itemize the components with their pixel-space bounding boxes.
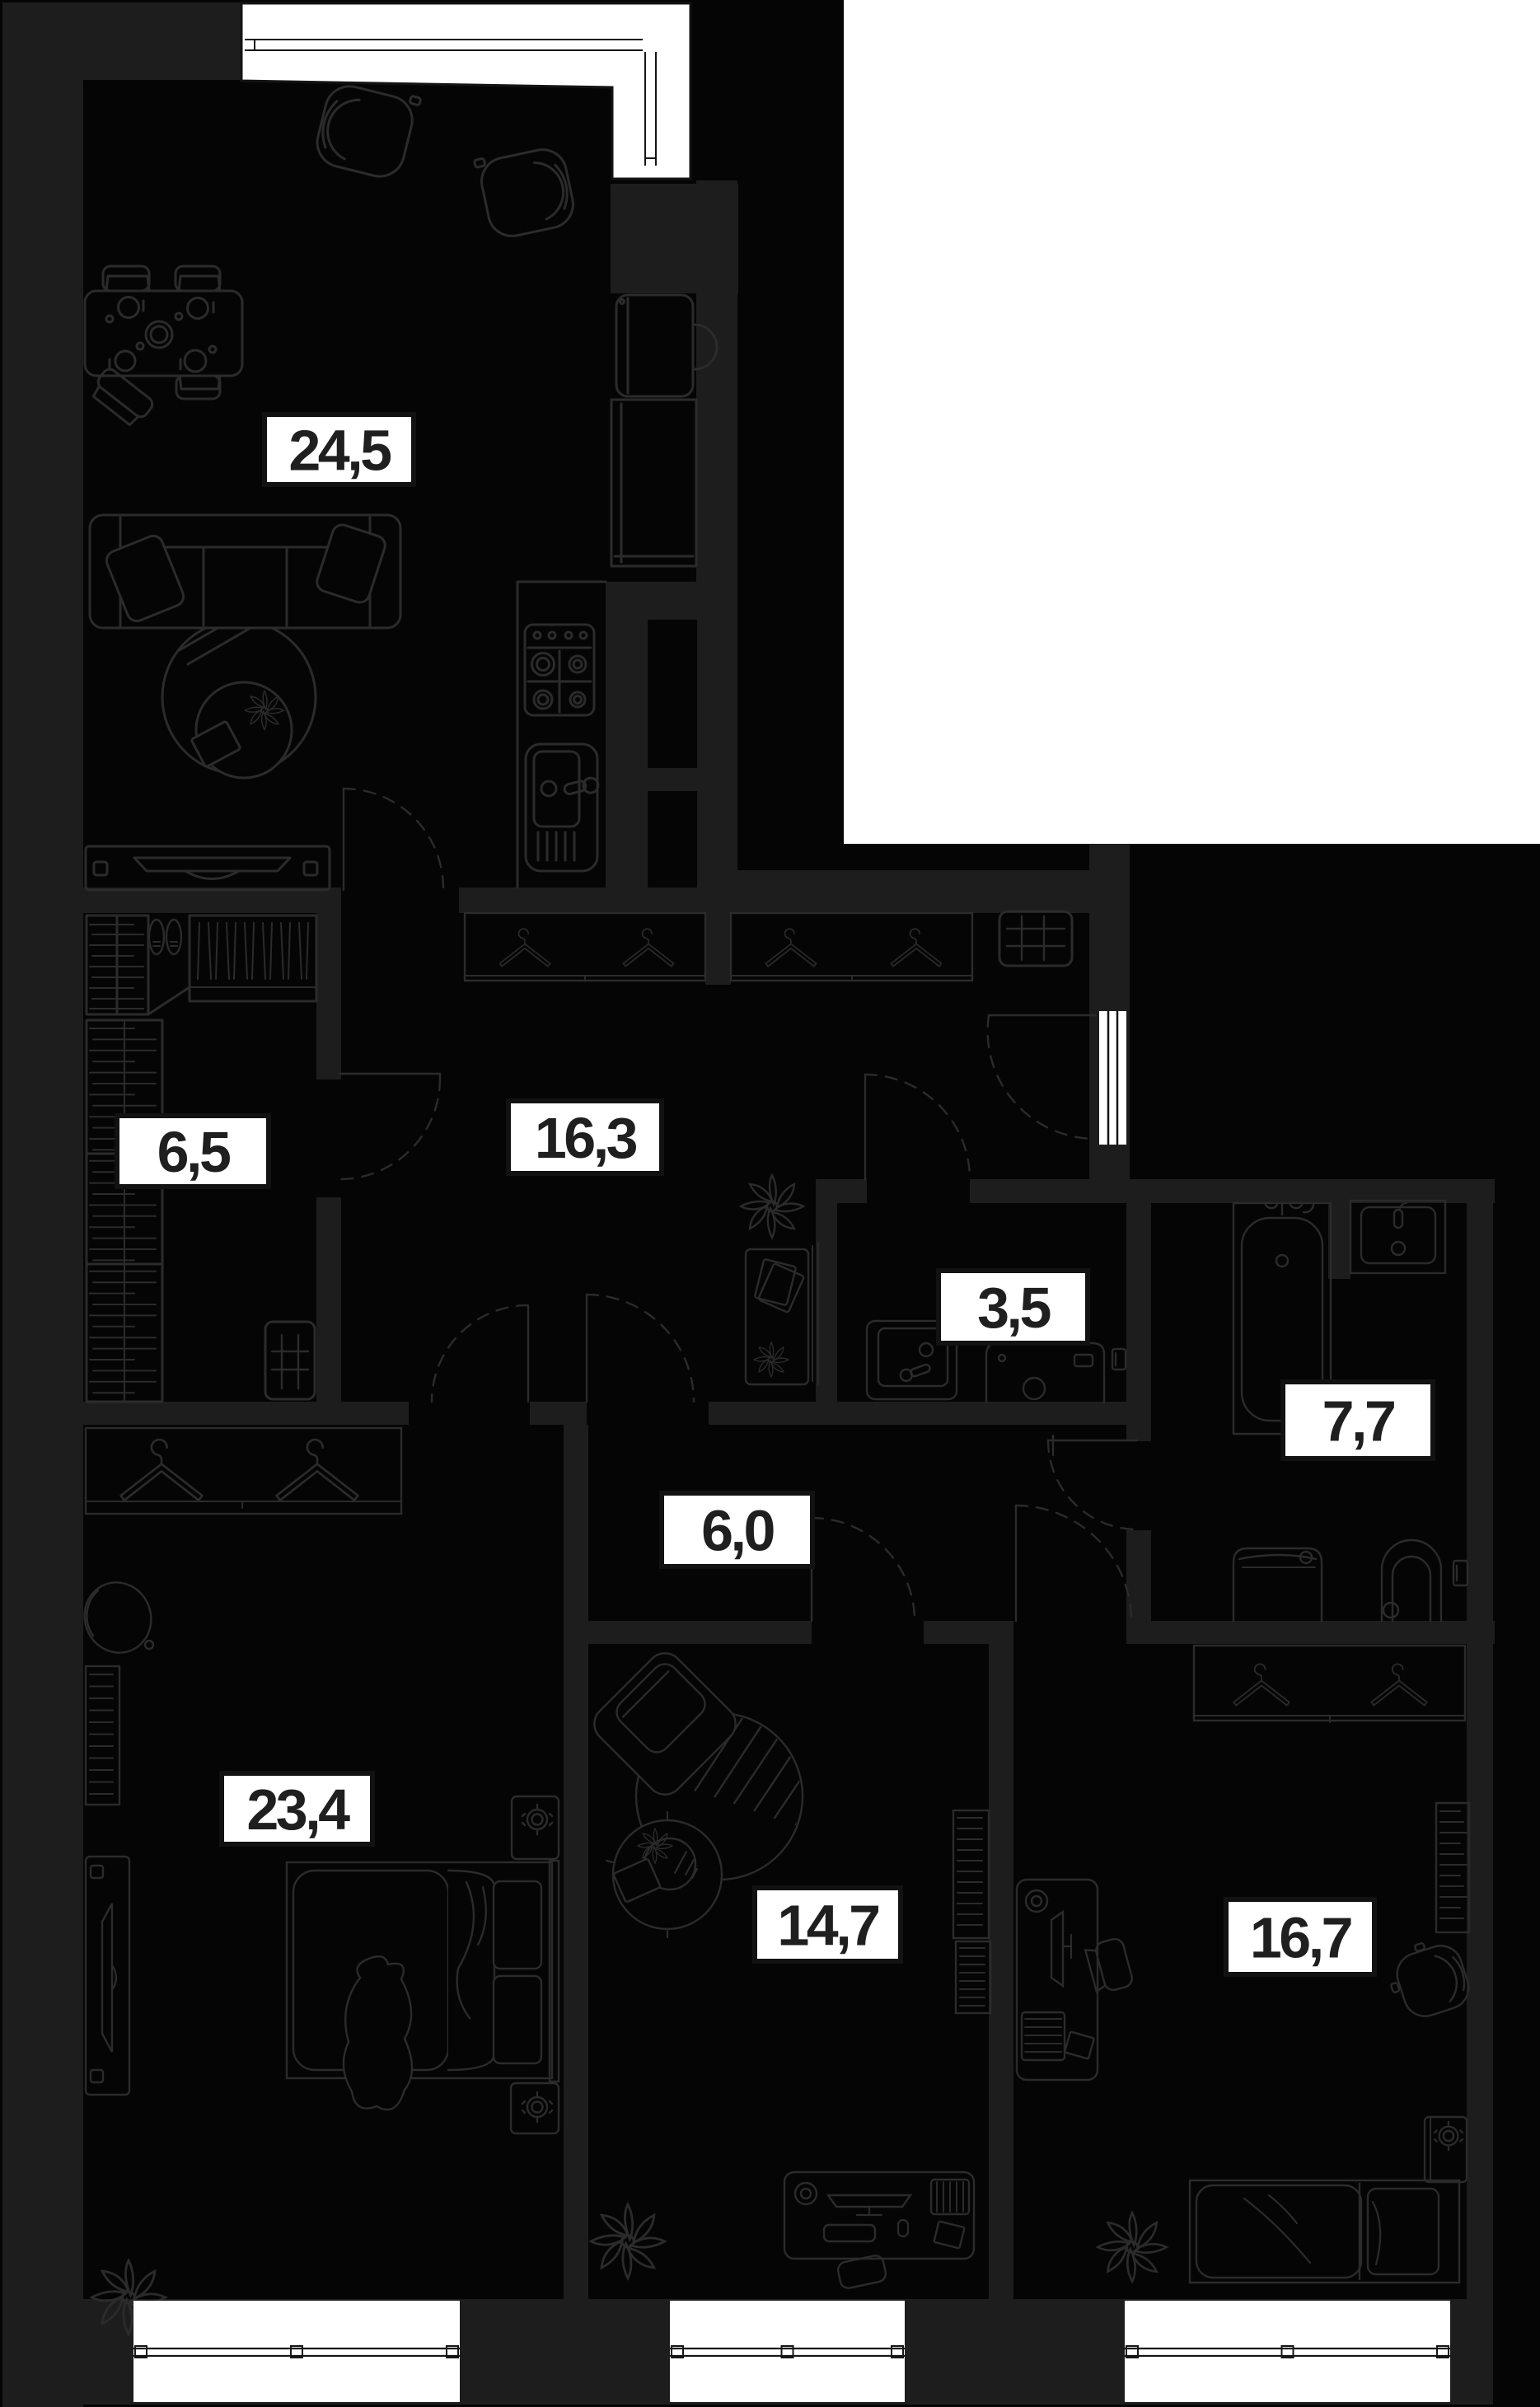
- svg-text:7,7: 7,7: [1322, 1389, 1394, 1454]
- svg-text:23,4: 23,4: [246, 1777, 350, 1842]
- svg-text:14,7: 14,7: [777, 1894, 878, 1958]
- svg-text:3,5: 3,5: [977, 1276, 1050, 1340]
- svg-text:6,0: 6,0: [701, 1499, 774, 1563]
- svg-text:16,3: 16,3: [535, 1106, 637, 1170]
- svg-text:24,5: 24,5: [288, 419, 391, 483]
- svg-text:16,7: 16,7: [1250, 1906, 1351, 1970]
- svg-text:6,5: 6,5: [157, 1120, 230, 1184]
